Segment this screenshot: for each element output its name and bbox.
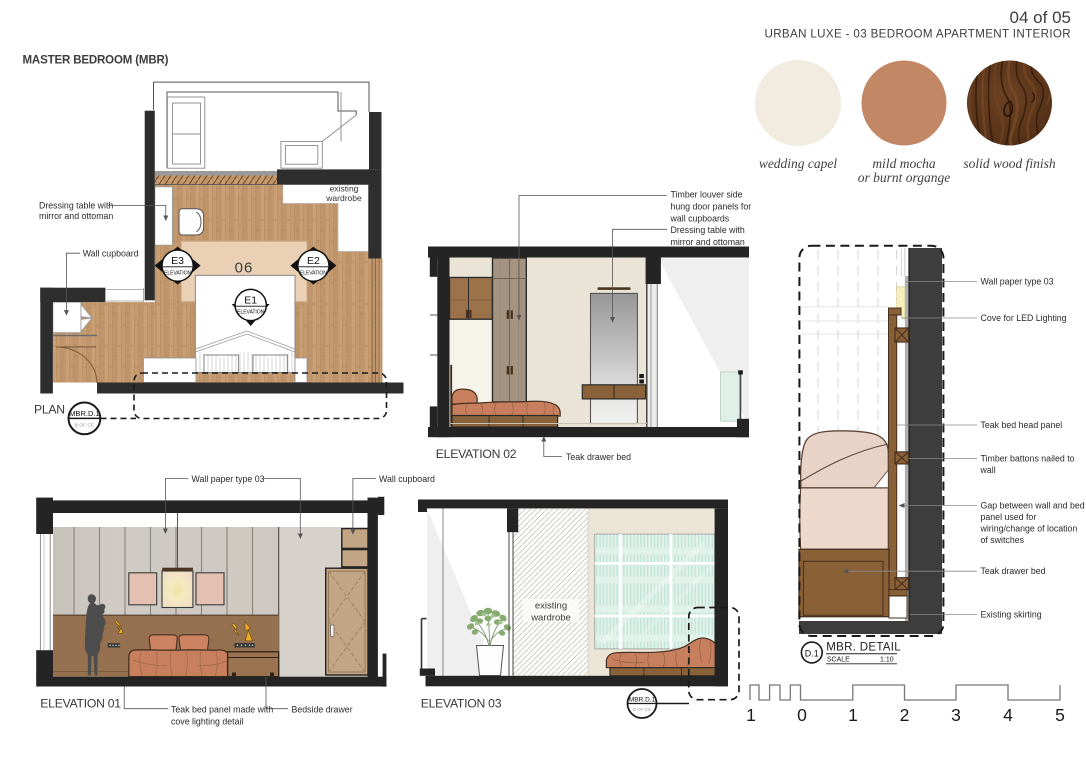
svg-text:2: 2 bbox=[900, 705, 910, 725]
svg-text:URBAN LUXE - 03 BEDROOM APART: URBAN LUXE - 03 BEDROOM APARTMENT INTERI… bbox=[764, 28, 1071, 41]
svg-text:Wall cupboard: Wall cupboard bbox=[83, 249, 139, 259]
svg-text:hung door panels for: hung door panels for bbox=[671, 202, 752, 212]
svg-text:Wall cupboard: Wall cupboard bbox=[379, 474, 435, 484]
svg-text:Timber louver side: Timber louver side bbox=[671, 190, 743, 200]
svg-text:existing: existing bbox=[330, 184, 359, 194]
svg-text:Dressing table with: Dressing table with bbox=[39, 201, 113, 211]
svg-text:Existing skirting: Existing skirting bbox=[981, 610, 1042, 620]
svg-text:4: 4 bbox=[1003, 705, 1013, 725]
svg-text:Teak drawer bed: Teak drawer bed bbox=[981, 566, 1046, 576]
svg-text:D.1: D.1 bbox=[805, 649, 819, 659]
svg-text:MBR.D.1: MBR.D.1 bbox=[69, 409, 99, 418]
svg-text:B OF CE: B OF CE bbox=[75, 422, 94, 428]
svg-text:B OF CE: B OF CE bbox=[633, 707, 651, 712]
svg-text:of switches: of switches bbox=[981, 535, 1025, 545]
svg-text:Teak bed head panel: Teak bed head panel bbox=[981, 420, 1063, 430]
svg-text:Cove for LED Lighting: Cove for LED Lighting bbox=[981, 313, 1067, 323]
svg-text:E2: E2 bbox=[307, 255, 320, 267]
svg-text:1: 1 bbox=[746, 705, 756, 725]
svg-text:ELEVATION: ELEVATION bbox=[237, 310, 264, 316]
svg-text:ELEVATION 01: ELEVATION 01 bbox=[40, 697, 121, 711]
svg-text:Timber battons nailed to: Timber battons nailed to bbox=[981, 454, 1075, 464]
svg-text:ELEVATION 02: ELEVATION 02 bbox=[436, 447, 517, 461]
svg-text:Bedside drawer: Bedside drawer bbox=[292, 705, 353, 715]
svg-text:ELEVATION: ELEVATION bbox=[164, 270, 191, 276]
svg-text:cove lighting detail: cove lighting detail bbox=[171, 717, 243, 727]
svg-text:or burnt organge: or burnt organge bbox=[858, 170, 951, 185]
svg-text:MBR. DETAIL: MBR. DETAIL bbox=[826, 642, 901, 654]
svg-text:Teak drawer bed: Teak drawer bed bbox=[566, 452, 631, 462]
svg-text:panel used for: panel used for bbox=[981, 512, 1037, 522]
svg-text:mild mocha: mild mocha bbox=[872, 156, 936, 171]
svg-text:wedding capel: wedding capel bbox=[759, 156, 838, 171]
svg-text:MASTER BEDROOM (MBR): MASTER BEDROOM (MBR) bbox=[23, 55, 169, 67]
svg-text:PLAN: PLAN bbox=[34, 403, 65, 417]
svg-text:06: 06 bbox=[235, 260, 254, 277]
svg-text:3: 3 bbox=[951, 705, 961, 725]
svg-text:solid wood finish: solid wood finish bbox=[963, 156, 1056, 171]
svg-text:existing: existing bbox=[535, 601, 567, 612]
svg-text:1:10: 1:10 bbox=[880, 657, 894, 664]
svg-text:5: 5 bbox=[1055, 705, 1065, 725]
svg-text:mirror and ottoman: mirror and ottoman bbox=[671, 237, 745, 247]
svg-text:ELEVATION: ELEVATION bbox=[300, 270, 327, 276]
svg-text:E1: E1 bbox=[244, 294, 257, 306]
svg-text:wardrobe: wardrobe bbox=[325, 193, 362, 203]
svg-text:Dressing table with: Dressing table with bbox=[671, 225, 745, 235]
svg-text:04 of 05: 04 of 05 bbox=[1010, 8, 1071, 27]
svg-text:Wall paper type 03: Wall paper type 03 bbox=[192, 474, 265, 484]
svg-text:MBR.D.1: MBR.D.1 bbox=[629, 697, 656, 704]
svg-text:wardrobe: wardrobe bbox=[530, 613, 571, 624]
svg-text:mirror and ottoman: mirror and ottoman bbox=[39, 211, 113, 221]
svg-text:Teak bed panel made with: Teak bed panel made with bbox=[171, 705, 273, 715]
svg-text:Gap between wall and bed: Gap between wall and bed bbox=[981, 501, 1085, 511]
svg-text:wall: wall bbox=[980, 465, 996, 475]
svg-text:wiring/change of location: wiring/change of location bbox=[980, 524, 1078, 534]
svg-text:Wall paper type 03: Wall paper type 03 bbox=[981, 277, 1054, 287]
svg-text:ELEVATION 03: ELEVATION 03 bbox=[421, 697, 502, 711]
svg-text:E3: E3 bbox=[171, 255, 184, 267]
svg-text:1: 1 bbox=[848, 705, 858, 725]
svg-text:SCALE: SCALE bbox=[827, 657, 850, 664]
svg-text:0: 0 bbox=[797, 705, 807, 725]
svg-text:wall cupboards: wall cupboards bbox=[670, 214, 730, 224]
